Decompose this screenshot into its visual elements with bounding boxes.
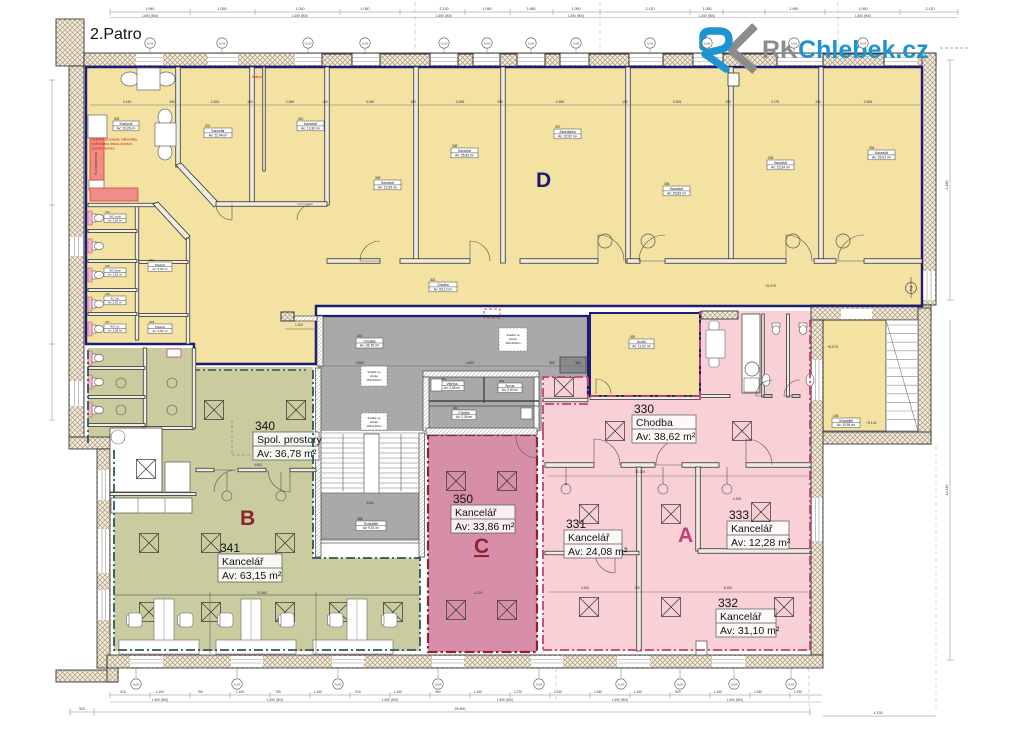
- svg-text:Kancelář: Kancelář: [568, 532, 610, 544]
- svg-text:kombin. lednice: kombin. lednice: [92, 147, 115, 151]
- svg-text:100x130cm: 100x130cm: [366, 378, 382, 382]
- svg-text:1.100: 1.100: [554, 690, 562, 694]
- svg-text:307: 307: [555, 125, 561, 129]
- svg-text:2.660: 2.660: [286, 100, 295, 104]
- svg-text:Av: 1,82 m²: Av: 1,82 m²: [108, 300, 122, 304]
- svg-text:3x09: 3x09: [788, 682, 795, 686]
- svg-text:3x09: 3x09: [573, 41, 580, 45]
- svg-text:4.130: 4.130: [874, 711, 883, 715]
- svg-text:1.690 (900): 1.690 (900): [152, 698, 168, 702]
- svg-text:315: 315: [105, 264, 110, 268]
- svg-text:B: B: [240, 507, 255, 530]
- svg-text:Av: 31,10 m²: Av: 31,10 m²: [720, 625, 780, 637]
- svg-text:301: 301: [205, 124, 211, 128]
- svg-text:4.280: 4.280: [556, 100, 565, 104]
- svg-text:150: 150: [410, 100, 416, 104]
- svg-text:2.120: 2.120: [926, 7, 935, 11]
- svg-text:rychlovarná deska, konvice,: rychlovarná deska, konvice,: [92, 142, 133, 146]
- svg-text:3.275: 3.275: [771, 100, 780, 104]
- svg-text:318: 318: [149, 320, 154, 324]
- svg-text:3x09: 3x09: [536, 682, 543, 686]
- svg-text:750: 750: [197, 690, 203, 694]
- svg-text:1.050: 1.050: [859, 7, 868, 11]
- svg-text:3x09: 3x09: [147, 41, 154, 45]
- svg-text:333: 333: [729, 508, 749, 522]
- svg-text:314: 314: [105, 210, 110, 214]
- svg-text:302: 302: [430, 278, 436, 282]
- svg-text:500: 500: [575, 361, 581, 365]
- svg-text:309: 309: [375, 176, 381, 180]
- svg-text:150: 150: [622, 100, 628, 104]
- svg-text:Av: 23,34 m²: Av: 23,34 m²: [771, 165, 791, 169]
- svg-text:Av: 24,08 m²: Av: 24,08 m²: [568, 546, 628, 558]
- svg-text:Av: 10,54 m²: Av: 10,54 m²: [837, 423, 855, 427]
- svg-text:Kancelář: Kancelář: [222, 556, 264, 568]
- svg-text:3x09: 3x09: [618, 682, 625, 686]
- svg-text:1.690 (900): 1.690 (900): [699, 14, 715, 18]
- svg-text:4.190: 4.190: [733, 497, 742, 501]
- svg-text:1.100: 1.100: [314, 690, 322, 694]
- svg-text:1.010: 1.010: [296, 7, 305, 11]
- svg-text:3x09: 3x09: [647, 41, 654, 45]
- svg-text:+5,140: +5,140: [866, 421, 877, 425]
- svg-text:1.050: 1.050: [218, 7, 227, 11]
- svg-text:1.690 (900): 1.690 (900): [855, 14, 871, 18]
- svg-text:3.265: 3.265: [456, 100, 465, 104]
- svg-text:1.050: 1.050: [483, 7, 492, 11]
- svg-text:360: 360: [357, 517, 363, 521]
- svg-text:Av: 1,58 m²: Av: 1,58 m²: [108, 328, 122, 332]
- svg-text:3x09: 3x09: [731, 682, 738, 686]
- svg-text:3x09: 3x09: [484, 41, 491, 45]
- svg-text:750: 750: [275, 690, 281, 694]
- svg-text:Av: 21,59 m²: Av: 21,59 m²: [378, 185, 398, 189]
- svg-text:3.030: 3.030: [366, 100, 375, 104]
- svg-text:332: 332: [718, 596, 738, 610]
- svg-text:Av: 25,83 m²: Av: 25,83 m²: [667, 191, 687, 195]
- svg-text:304: 304: [869, 146, 875, 150]
- svg-text:1.100: 1.100: [714, 690, 722, 694]
- svg-text:A: A: [678, 524, 693, 547]
- svg-text:Av: 12,44 m²: Av: 12,44 m²: [209, 133, 229, 137]
- svg-text:3x09: 3x09: [791, 41, 798, 45]
- svg-text:302: 302: [114, 117, 120, 121]
- svg-text:331: 331: [566, 517, 586, 531]
- svg-text:3.665: 3.665: [864, 100, 873, 104]
- svg-text:106: 106: [833, 414, 839, 418]
- svg-text:310: 310: [298, 117, 304, 121]
- svg-text:3x09: 3x09: [305, 41, 312, 45]
- svg-text:1.690 (900): 1.690 (900): [382, 698, 398, 702]
- svg-text:3x09: 3x09: [335, 682, 342, 686]
- svg-text:Kancelář: Kancelář: [455, 507, 497, 519]
- svg-text:Av: 11,92 m²: Av: 11,92 m²: [632, 344, 651, 348]
- svg-text:3.600: 3.600: [366, 501, 374, 505]
- svg-text:150: 150: [725, 100, 731, 104]
- svg-text:1.650: 1.650: [790, 7, 799, 11]
- svg-text:308: 308: [452, 144, 458, 148]
- svg-text:1.650: 1.650: [527, 7, 536, 11]
- svg-text:1.100: 1.100: [474, 690, 482, 694]
- svg-text:1.050: 1.050: [572, 7, 581, 11]
- svg-text:320: 320: [630, 335, 636, 339]
- svg-text:150: 150: [815, 100, 821, 104]
- svg-text:1.690 (900): 1.690 (900): [292, 14, 308, 18]
- svg-text:1.940: 1.940: [146, 7, 155, 11]
- svg-text:Av: 38,62 m²: Av: 38,62 m²: [636, 431, 696, 443]
- svg-text:1.070: 1.070: [514, 690, 522, 694]
- svg-text:Av: 9,01 m²: Av: 9,01 m²: [363, 526, 379, 530]
- svg-text:350: 350: [453, 492, 473, 506]
- svg-text:4.520: 4.520: [466, 361, 474, 365]
- svg-text:150: 150: [634, 586, 640, 590]
- svg-text:6.450: 6.450: [724, 586, 733, 590]
- svg-text:Av: 2,26 m²: Av: 2,26 m²: [456, 415, 472, 419]
- svg-text:960: 960: [435, 690, 441, 694]
- svg-text:3.419: 3.419: [123, 100, 132, 104]
- svg-text:Kancelář: Kancelář: [731, 523, 773, 535]
- svg-text:Av: 36,75 m²: Av: 36,75 m²: [360, 344, 380, 348]
- svg-text:3x09: 3x09: [677, 682, 684, 686]
- svg-text:C: C: [474, 535, 489, 558]
- svg-text:155: 155: [497, 100, 503, 104]
- svg-text:Kuchyňská linka: Kuchyňská linka: [94, 152, 98, 175]
- svg-text:313: 313: [149, 258, 154, 262]
- svg-text:Av: 63,15 m²: Av: 63,15 m²: [222, 570, 282, 582]
- svg-text:Chodba: Chodba: [636, 417, 673, 429]
- svg-text:900: 900: [549, 361, 555, 365]
- svg-text:1.200: 1.200: [295, 323, 303, 327]
- svg-text:D: D: [536, 169, 551, 192]
- svg-text:510: 510: [120, 690, 126, 694]
- svg-text:100x140cm: 100x140cm: [366, 424, 382, 428]
- svg-text:Av: 2,06 m²: Av: 2,06 m²: [444, 386, 460, 390]
- svg-text:340: 340: [255, 419, 275, 433]
- svg-text:3x09: 3x09: [860, 41, 867, 45]
- svg-text:100x100cm: 100x100cm: [505, 341, 521, 345]
- svg-text:3x09: 3x09: [704, 41, 711, 45]
- svg-text:2.824: 2.824: [211, 100, 220, 104]
- svg-text:Av: 69,12 m²: Av: 69,12 m²: [434, 287, 454, 291]
- svg-text:330: 330: [634, 402, 654, 416]
- svg-text:Av: 25,83 m²: Av: 25,83 m²: [455, 153, 475, 157]
- svg-text:150: 150: [247, 100, 253, 104]
- svg-text:304: 304: [499, 379, 504, 383]
- svg-text:Av: 3,50 m²: Av: 3,50 m²: [152, 329, 167, 333]
- svg-text:1.100: 1.100: [634, 690, 642, 694]
- svg-text:3.460: 3.460: [945, 181, 949, 190]
- svg-text:1.690 (900): 1.690 (900): [267, 698, 283, 702]
- svg-text:Av: 13,30 m²: Av: 13,30 m²: [301, 126, 321, 130]
- svg-text:Av: 33,86 m²: Av: 33,86 m²: [455, 521, 515, 533]
- svg-text:1.100: 1.100: [156, 690, 164, 694]
- svg-text:+6,570: +6,570: [827, 345, 838, 349]
- svg-text:Kancelář: Kancelář: [720, 611, 762, 623]
- svg-text:25.900: 25.900: [455, 707, 466, 711]
- svg-text:Doplnit LED pásek, mikrovlnka,: Doplnit LED pásek, mikrovlnka,: [92, 138, 138, 142]
- svg-text:balkón: balkón: [252, 75, 262, 79]
- svg-text:1.690 (900): 1.690 (900): [568, 14, 584, 18]
- svg-text:1.690 (900): 1.690 (900): [142, 14, 158, 18]
- svg-text:910: 910: [355, 690, 361, 694]
- svg-text:1.040: 1.040: [594, 690, 602, 694]
- svg-text:Av: 36,78 m²: Av: 36,78 m²: [257, 448, 317, 460]
- svg-text:1.690 (900): 1.690 (900): [497, 698, 513, 702]
- svg-text:2.Patro: 2.Patro: [90, 26, 142, 43]
- svg-text:Av: 32,92 m²: Av: 32,92 m²: [558, 134, 578, 138]
- svg-text:302: 302: [453, 406, 458, 410]
- svg-text:Av: 1,62 m²: Av: 1,62 m²: [108, 218, 122, 222]
- svg-text:1.030: 1.030: [754, 690, 762, 694]
- svg-text:4.120: 4.120: [474, 591, 483, 595]
- svg-text:11.560: 11.560: [257, 591, 267, 595]
- svg-text:+6,570: +6,570: [765, 284, 776, 288]
- svg-text:3.600: 3.600: [356, 361, 364, 365]
- svg-text:1.050: 1.050: [361, 7, 370, 11]
- svg-text:3x09: 3x09: [441, 41, 448, 45]
- svg-text:3.510: 3.510: [581, 586, 590, 590]
- svg-text:317: 317: [105, 320, 110, 324]
- svg-text:1.690 (900): 1.690 (900): [612, 698, 628, 702]
- svg-text:316: 316: [105, 292, 110, 296]
- svg-text:3x09: 3x09: [133, 682, 140, 686]
- svg-text:1.100: 1.100: [394, 690, 402, 694]
- svg-text:Av: 19,26 m²: Av: 19,26 m²: [117, 126, 137, 130]
- svg-text:305: 305: [768, 156, 774, 160]
- svg-text:RKChlebek.cz: RKChlebek.cz: [762, 36, 929, 64]
- svg-text:4.500: 4.500: [254, 463, 262, 467]
- svg-text:3x09: 3x09: [234, 682, 241, 686]
- svg-text:1.100: 1.100: [794, 690, 802, 694]
- svg-text:Av: 26,01 m²: Av: 26,01 m²: [872, 155, 892, 159]
- svg-text:3x09: 3x09: [435, 682, 442, 686]
- svg-text:Av: 6,06 m²: Av: 6,06 m²: [152, 267, 167, 271]
- svg-text:306: 306: [664, 182, 670, 186]
- svg-text:Av: 12,28 m²: Av: 12,28 m²: [731, 537, 791, 549]
- svg-text:10.110: 10.110: [635, 470, 645, 474]
- svg-text:1.100: 1.100: [236, 690, 244, 694]
- svg-text:Av: 1,62 m²: Av: 1,62 m²: [108, 272, 122, 276]
- svg-text:341: 341: [220, 541, 240, 555]
- svg-text:920: 920: [675, 690, 681, 694]
- svg-text:3x09: 3x09: [528, 41, 535, 45]
- svg-text:2.130: 2.130: [440, 7, 449, 11]
- svg-text:12.440: 12.440: [945, 485, 949, 496]
- svg-text:1.050: 1.050: [703, 7, 712, 11]
- svg-text:1.690 (900): 1.690 (900): [436, 14, 452, 18]
- svg-text:920: 920: [79, 707, 85, 711]
- svg-text:3x09: 3x09: [362, 41, 369, 45]
- svg-text:201: 201: [357, 334, 363, 338]
- svg-text:1.690 (900): 1.690 (900): [727, 698, 743, 702]
- svg-text:3.625: 3.625: [673, 100, 682, 104]
- svg-text:3x09: 3x09: [219, 41, 226, 45]
- svg-text:2.120: 2.120: [646, 7, 655, 11]
- svg-text:150: 150: [169, 100, 175, 104]
- svg-text:Av: 3,60 m²: Av: 3,60 m²: [502, 388, 518, 392]
- svg-text:150: 150: [322, 100, 328, 104]
